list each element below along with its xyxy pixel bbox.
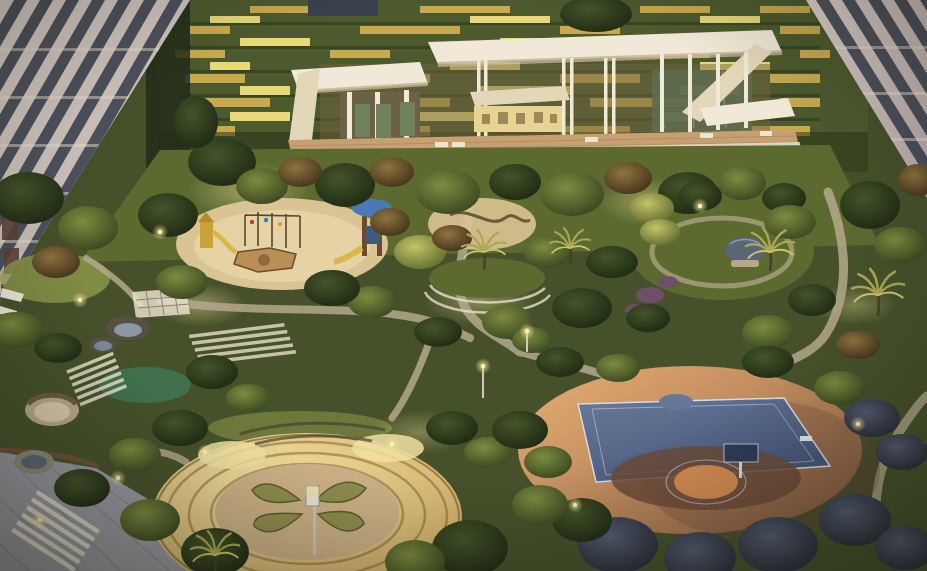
- courtyard-render-canvas: [0, 0, 927, 571]
- courtyard-render: [0, 0, 927, 571]
- vignette-overlay: [0, 0, 927, 571]
